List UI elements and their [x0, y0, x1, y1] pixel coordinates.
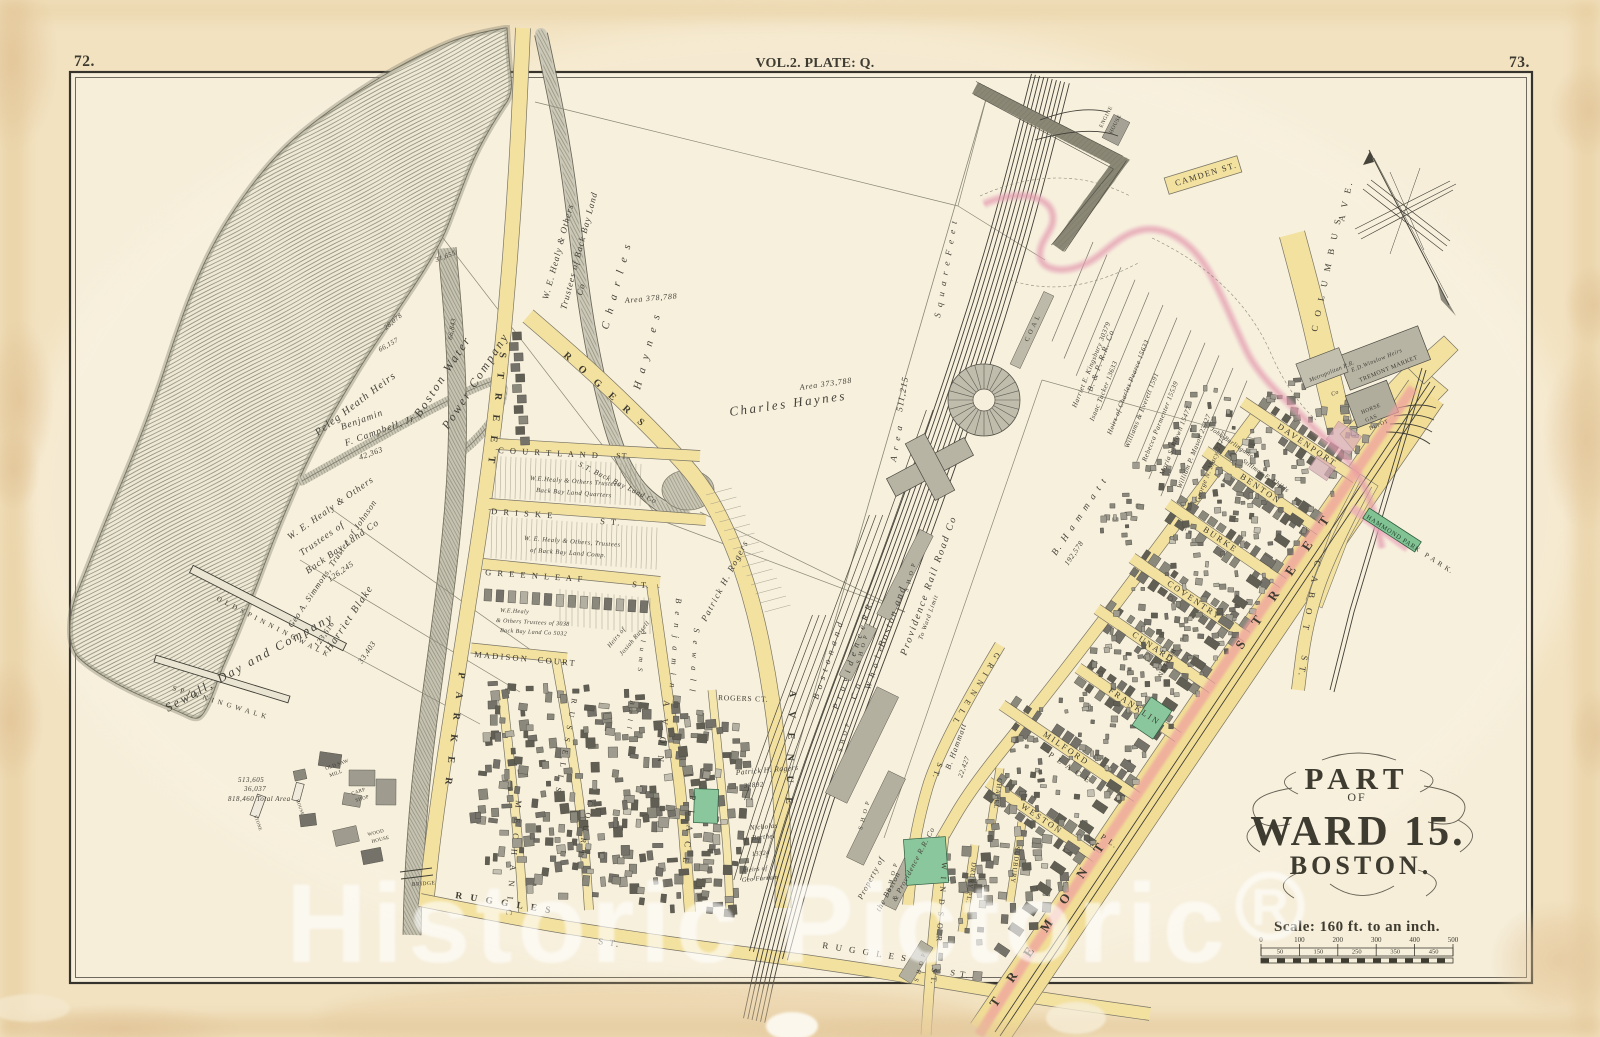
svg-text:450: 450 — [1429, 949, 1439, 956]
svg-text:150: 150 — [1314, 949, 1324, 956]
svg-text:ROGERS CT.: ROGERS CT. — [718, 693, 769, 704]
svg-text:R: R — [1251, 879, 1289, 937]
svg-text:73.: 73. — [1509, 54, 1530, 71]
svg-text:72.: 72. — [74, 53, 95, 70]
svg-text:WARD 15.: WARD 15. — [1250, 809, 1465, 855]
svg-text:Historic Pictoric: Historic Pictoric — [286, 861, 1230, 986]
svg-text:50: 50 — [1277, 949, 1284, 956]
svg-text:36,037: 36,037 — [243, 785, 266, 793]
svg-text:S T.: S T. — [632, 579, 650, 590]
svg-text:250: 250 — [1352, 949, 1362, 956]
svg-text:200: 200 — [1333, 936, 1344, 944]
svg-text:818,460 Total Area: 818,460 Total Area — [228, 795, 291, 803]
svg-text:ST.: ST. — [616, 451, 630, 461]
svg-text:513,605: 513,605 — [238, 776, 264, 784]
svg-text:S T.: S T. — [600, 516, 622, 527]
svg-text:350: 350 — [1390, 949, 1400, 956]
svg-text:VOL.2. PLATE: Q.: VOL.2. PLATE: Q. — [756, 56, 875, 71]
svg-text:500: 500 — [1448, 936, 1459, 944]
svg-text:BOSTON.: BOSTON. — [1290, 851, 1432, 880]
svg-text:300: 300 — [1371, 936, 1382, 944]
svg-text:400: 400 — [1409, 936, 1420, 944]
svg-text:OF: OF — [1347, 790, 1366, 804]
svg-text:100: 100 — [1294, 936, 1305, 944]
